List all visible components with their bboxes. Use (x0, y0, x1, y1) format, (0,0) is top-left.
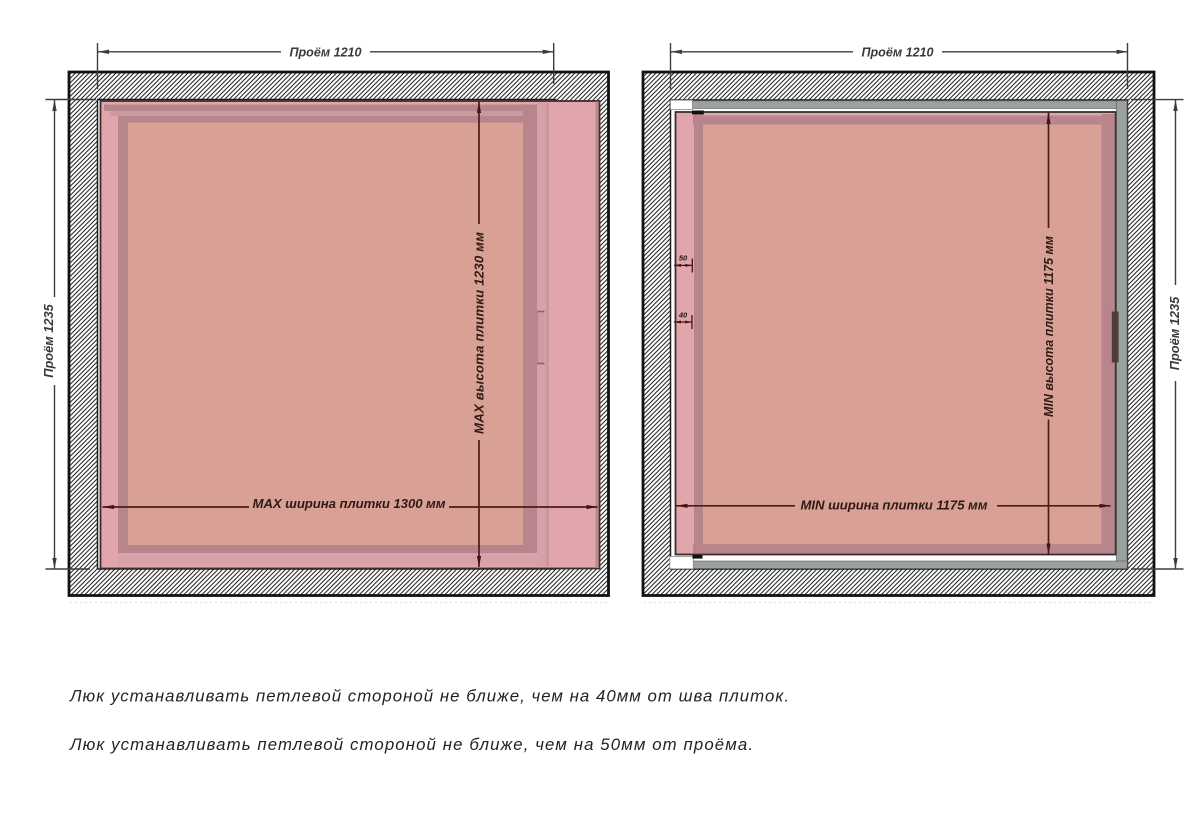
svg-text:Проём 1210: Проём 1210 (862, 44, 935, 59)
svg-text:50: 50 (679, 254, 688, 263)
svg-text:Люк устанавливать петлевой сто: Люк устанавливать петлевой стороной не б… (69, 735, 753, 754)
svg-text:MIN ширина плитки 1175 мм: MIN ширина плитки 1175 мм (801, 498, 988, 513)
svg-text:40: 40 (678, 311, 688, 320)
svg-text:Люк устанавливать петлевой сто: Люк устанавливать петлевой стороной не б… (69, 687, 789, 706)
svg-text:Проём 1235: Проём 1235 (1167, 296, 1182, 370)
svg-text:Проём 1210: Проём 1210 (290, 44, 363, 59)
svg-text:MAX ширина плитки 1300 мм: MAX ширина плитки 1300 мм (253, 496, 446, 511)
svg-text:MAX высота плитки 1230 мм: MAX высота плитки 1230 мм (472, 232, 487, 434)
svg-text:Проём 1235: Проём 1235 (41, 304, 56, 378)
svg-text:MIN высота плитки 1175 мм: MIN высота плитки 1175 мм (1041, 236, 1056, 417)
